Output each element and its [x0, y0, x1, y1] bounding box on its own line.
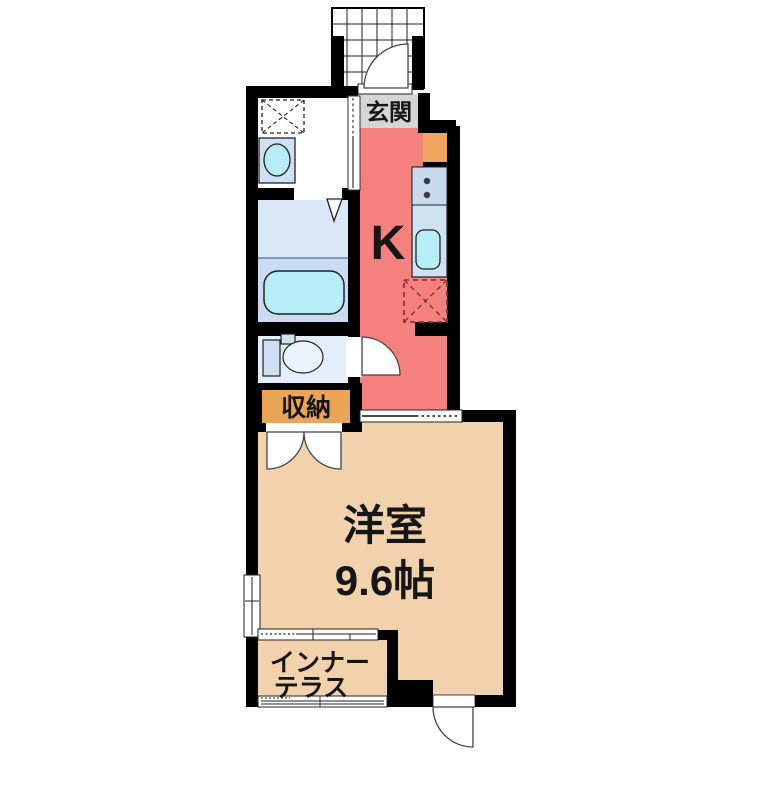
kitchen-sink-icon	[416, 230, 440, 269]
wall-terrace-right	[387, 640, 398, 682]
wall-fridge-stub	[415, 322, 447, 336]
wall-right	[503, 410, 516, 707]
main-room-label: 洋室	[343, 502, 427, 549]
washroom-sliding-door-icon	[348, 96, 360, 190]
storage-label: 収納	[281, 393, 331, 422]
kitchen-counter	[412, 167, 447, 277]
vanity-basin-icon	[264, 144, 290, 176]
toilet-bowl	[283, 341, 323, 373]
terrace-label-line1: インナー	[270, 649, 370, 677]
bathtub-icon	[264, 271, 344, 314]
stove-burner-icon	[424, 192, 430, 198]
wall-shoe-cabinet-base	[423, 162, 447, 167]
floor-plan-canvas: 玄関 K 収納 洋室 9.6帖 インナー テラス	[0, 0, 768, 800]
toilet-tank	[263, 340, 280, 376]
floor-plan-page: 玄関 K 収納 洋室 9.6帖 インナー テラス	[0, 0, 768, 800]
terrace-exterior-door-icon	[433, 707, 473, 747]
wall-porch-left	[332, 36, 344, 90]
room-size-label: 9.6帖	[335, 557, 435, 604]
exterior-doorway	[433, 695, 475, 707]
terrace-label-line2: テラス	[274, 674, 349, 702]
toilet-doorway	[346, 337, 362, 377]
wall-bath-right	[348, 188, 360, 337]
kitchen-label: K	[371, 217, 406, 270]
wall-kitchen-right	[447, 126, 460, 412]
wall-porch-right	[412, 36, 424, 90]
stove-burner-icon	[424, 178, 430, 184]
wall-terrace-top-stub	[378, 630, 398, 640]
entrance-label: 玄関	[366, 99, 412, 125]
shoe-cabinet	[423, 133, 447, 162]
stove-section	[412, 167, 447, 205]
closet-doorway	[266, 422, 342, 432]
wall-bath-toilet	[258, 322, 360, 336]
bathroom-doorway	[294, 188, 342, 200]
wall-bottom-right	[475, 695, 516, 707]
wall-bottom-block	[387, 680, 433, 707]
